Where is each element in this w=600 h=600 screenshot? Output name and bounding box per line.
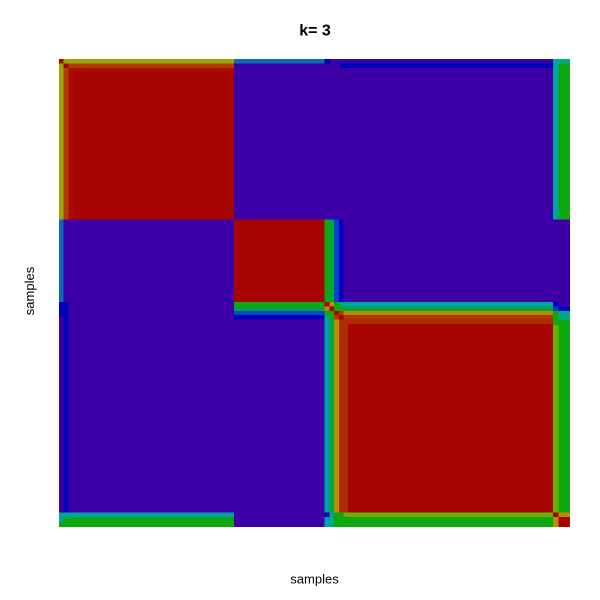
- svg-text:samples: samples: [22, 266, 37, 315]
- svg-text:samples: samples: [290, 572, 339, 587]
- svg-text:k= 3: k= 3: [299, 23, 331, 40]
